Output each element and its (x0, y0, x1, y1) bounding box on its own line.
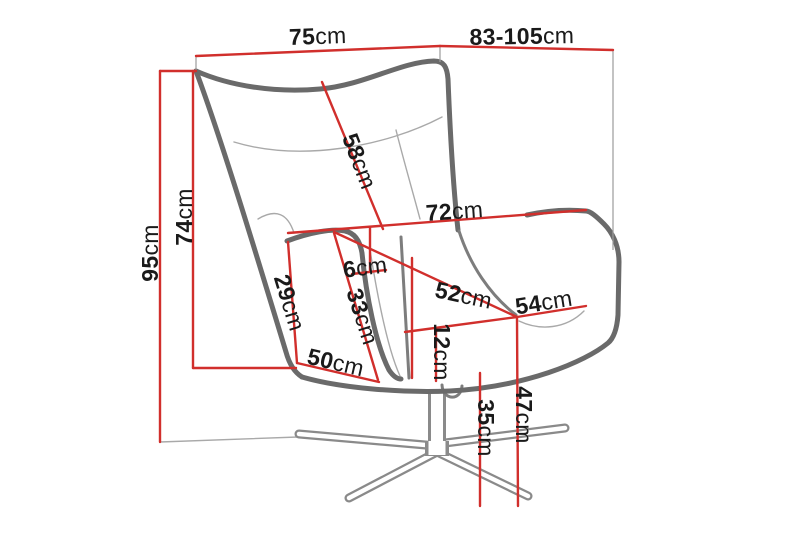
dim-unit-seat-front-width: cm (330, 349, 366, 381)
dim-label-backrest-length: 58cm (337, 130, 382, 193)
dim-unit-seat-depth: cm (539, 285, 574, 316)
dimension-diagram-canvas: 75cm 83-105cm 95cm 74cm 58cm 72cm 6cm 29… (0, 0, 800, 533)
dim-value-seat-depth: 54 (513, 290, 543, 320)
dim-label-armrest-top-width: 6cm (341, 251, 388, 282)
dim-unit-armrest-top-width: cm (354, 251, 388, 281)
dim-unit-backrest-height: cm (171, 188, 197, 219)
base-leg-right-inner (437, 428, 565, 444)
dim-value-backrest-height: 74 (171, 220, 197, 246)
dim-unit-seat-width: cm (458, 282, 494, 314)
dim-unit-total-height: cm (137, 224, 163, 255)
dim-label-seat-depth: 54cm (513, 285, 574, 320)
floor-line (160, 437, 298, 442)
dim-value-total-depth: 83-105 (469, 23, 543, 50)
dim-label-seat-thickness: 12cm (429, 323, 455, 380)
backrest-top-right-outline (196, 61, 458, 230)
dim-unit-armrest-front-height: cm (276, 296, 310, 334)
base-leg-front-left-inner (349, 452, 437, 498)
dim-label-total-depth: 83-105cm (469, 22, 574, 50)
dim-unit-total-depth: cm (543, 22, 575, 49)
dim-value-underseat-height: 35 (473, 399, 499, 425)
dim-unit-total-width: cm (315, 22, 347, 49)
dim-unit-depth-at-armrest: cm (451, 196, 484, 224)
dim-value-depth-at-armrest: 72 (425, 198, 453, 226)
backrest-vertical-seam (396, 130, 420, 219)
side-shell-right (527, 210, 619, 262)
dim-unit-seat-height: cm (511, 412, 537, 443)
armrest-rear-edge (401, 237, 409, 378)
dim-label-seat-height: 47cm (511, 386, 537, 443)
dim-value-seat-height: 47 (511, 386, 537, 412)
dim-label-seat-front-width: 50cm (305, 343, 367, 381)
chair-line-art (160, 61, 619, 498)
dim-label-depth-at-armrest: 72cm (425, 196, 484, 226)
dim-value-total-height: 95 (137, 256, 163, 282)
dim-label-total-height: 95cm (137, 224, 163, 281)
dim-value-total-width: 75 (289, 23, 316, 50)
armchair-dimension-diagram: 75cm 83-105cm 95cm 74cm 58cm 72cm 6cm 29… (0, 0, 800, 533)
dim-line-seat-front-edge (405, 317, 517, 332)
dim-label-total-width: 75cm (289, 22, 347, 50)
dim-unit-seat-thickness: cm (429, 349, 455, 380)
dim-label-backrest-height: 74cm (171, 188, 197, 245)
dim-value-seat-thickness: 12 (429, 323, 455, 349)
dim-unit-underseat-height: cm (473, 425, 499, 456)
dim-label-underseat-height: 35cm (473, 399, 499, 456)
base-leg-front-right-inner (437, 452, 528, 496)
wing-seam (258, 214, 294, 233)
